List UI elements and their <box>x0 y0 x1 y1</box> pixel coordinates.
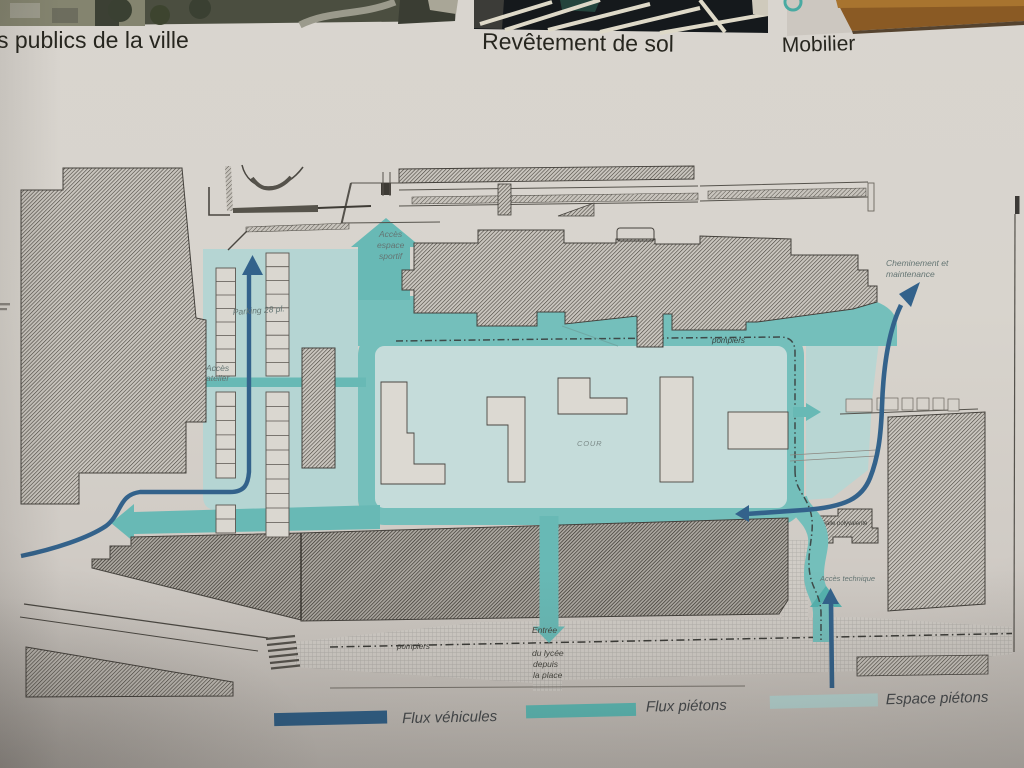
svg-text:Entrée: Entrée <box>532 625 557 635</box>
svg-text:pompiers: pompiers <box>396 642 430 651</box>
svg-text:atelier: atelier <box>206 373 230 383</box>
svg-text:Accès: Accès <box>205 363 230 373</box>
svg-text:du lycée: du lycée <box>532 648 564 658</box>
svg-text:Revêtement de sol: Revêtement de sol <box>482 28 674 57</box>
svg-text:la place: la place <box>533 670 563 680</box>
svg-text:Cheminement et: Cheminement et <box>886 258 949 268</box>
svg-text:Mobilier: Mobilier <box>782 32 856 57</box>
svg-text:Flux véhicules: Flux véhicules <box>402 708 498 727</box>
svg-text:Accès: Accès <box>378 229 403 239</box>
svg-text:espace: espace <box>377 240 405 250</box>
svg-text:depuis: depuis <box>533 659 559 669</box>
svg-text:sportif: sportif <box>379 251 404 261</box>
svg-text:s publics de la ville: s publics de la ville <box>0 27 189 53</box>
svg-text:Accès technique: Accès technique <box>819 574 875 583</box>
svg-text:maintenance: maintenance <box>886 269 935 279</box>
svg-text:Flux piétons: Flux piétons <box>646 697 728 716</box>
svg-text:COUR: COUR <box>577 439 602 448</box>
svg-text:pompiers: pompiers <box>711 336 745 345</box>
svg-text:Salle polyvalente: Salle polyvalente <box>822 521 868 527</box>
svg-text:Espace piétons: Espace piétons <box>886 689 989 708</box>
